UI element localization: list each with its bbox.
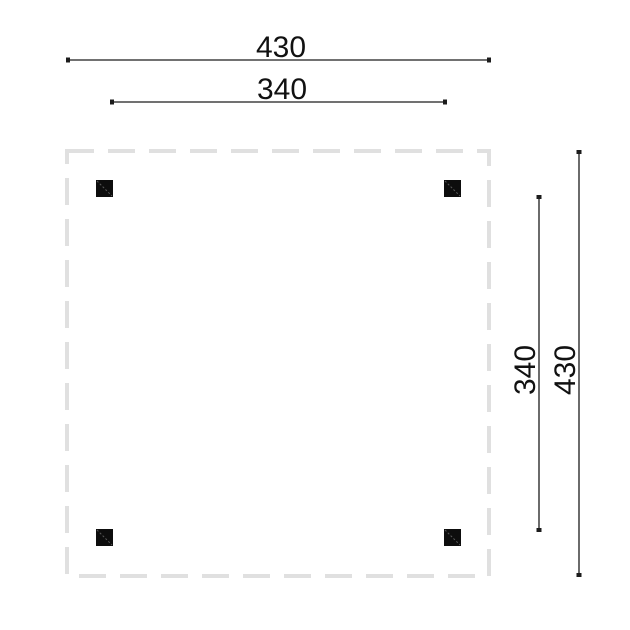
plan-svg: 430 340 340 430 bbox=[0, 0, 630, 630]
roof-outline-dashed bbox=[67, 151, 489, 576]
dimension-label: 340 bbox=[257, 73, 307, 106]
post-bottom-right bbox=[444, 529, 461, 546]
dimension-right-inner: 340 bbox=[509, 195, 542, 532]
dimension-label: 340 bbox=[509, 345, 542, 395]
dimension-end-tick bbox=[487, 58, 491, 63]
post-square bbox=[444, 529, 461, 546]
post-square bbox=[96, 180, 113, 197]
dimension-end-tick bbox=[537, 528, 542, 532]
post-bottom-left bbox=[96, 529, 113, 546]
dimension-top-outer: 430 bbox=[66, 31, 491, 64]
dimension-top-inner: 340 bbox=[110, 73, 447, 106]
post-square bbox=[444, 180, 461, 197]
post-top-left bbox=[96, 180, 113, 197]
dimension-end-tick bbox=[443, 100, 447, 105]
dimension-label: 430 bbox=[549, 345, 582, 395]
dimension-right-outer: 430 bbox=[549, 150, 582, 577]
dimension-end-tick bbox=[577, 150, 582, 154]
dimension-end-tick bbox=[537, 195, 542, 199]
dimension-label: 430 bbox=[256, 31, 306, 64]
plan-drawing: 430 340 340 430 bbox=[0, 0, 630, 630]
dimension-end-tick bbox=[110, 100, 114, 105]
dimension-end-tick bbox=[577, 573, 582, 577]
post-top-right bbox=[444, 180, 461, 197]
dimension-end-tick bbox=[66, 58, 70, 63]
post-square bbox=[96, 529, 113, 546]
